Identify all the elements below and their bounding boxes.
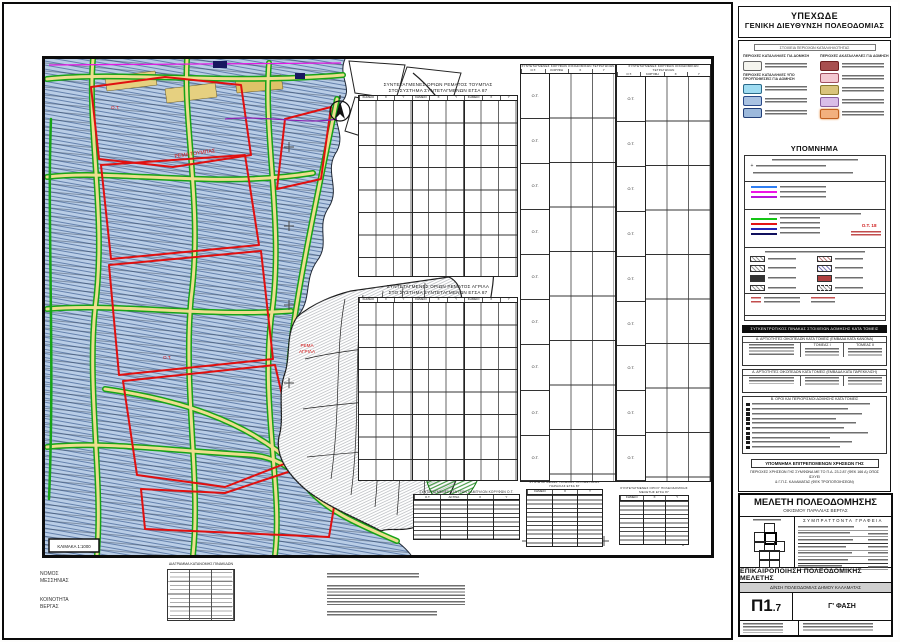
sheet-index-diagram — [740, 517, 795, 567]
row-text-bar — [752, 403, 870, 406]
label-bar — [768, 287, 796, 290]
decor — [750, 265, 813, 272]
red-label-bar — [851, 231, 881, 236]
diagram-grid — [167, 569, 235, 621]
column-header: Υ — [394, 298, 412, 302]
table-subtitle: ΣΤΟ ΣΥΣΤΗΜΑ ΣΥΝΤΕΤΑΓΜΕΝΩΝ ΕΓΣΑ 87 — [358, 290, 518, 296]
legend-section-ratios — [745, 294, 885, 316]
column-header: ΣΗΜΕΙΟ — [527, 490, 552, 494]
row-label-bars — [749, 377, 795, 384]
label-bar — [780, 222, 820, 225]
swatch-conditional-1 — [743, 84, 762, 94]
swatch-unsuitable-5 — [820, 109, 839, 119]
member-role-bar — [868, 533, 888, 535]
conditional-header: ΠΕΡΙΟΧΕΣ ΚΑΤΑΛΛΗΛΕΣ ΥΠΟ ΠΡΟΫΠΟΘΕΣΕΙΣ ΓΙΑ… — [743, 73, 815, 82]
revision-cell-right — [799, 621, 891, 635]
decor — [646, 77, 710, 481]
value-bars — [848, 377, 882, 385]
decor — [820, 85, 890, 95]
ot-group-label: Ο.Τ. — [617, 346, 645, 391]
table-title: ΣΥΝΤΕΤΑΓΜΕΝΕΣ ΚΕΝΤΡΩΝ ΚΑΜΠΥΛΩΝ ΚΟΡΥΦΩΝ Ο… — [413, 490, 520, 494]
community-label: ΚΟΙΝΟΤΗΤΑ ΒΕΡΓΑΣ — [40, 597, 69, 610]
column-header: Υ — [500, 298, 518, 302]
decor: ΤΟΜΕΑΣ Ι — [801, 343, 844, 357]
decor — [801, 376, 844, 386]
decor — [750, 256, 813, 263]
team-member-row — [798, 551, 888, 558]
section-header-bar — [769, 213, 861, 216]
swatch-label — [842, 99, 884, 105]
section-header-bar — [772, 159, 858, 162]
label-bar — [835, 287, 863, 290]
index-square — [769, 559, 780, 568]
suitable-column: ΠΕΡΙΟΧΕΣ ΚΑΤΑΛΛΗΛΕΣ ΓΙΑ ΔΟΜΗΣΗ ΠΕΡΙΟΧΕΣ … — [739, 54, 815, 142]
decor — [213, 61, 227, 68]
ot-group-label: Ο.Τ. — [617, 391, 645, 436]
ot-group-label: Ο.Τ. — [521, 391, 549, 436]
row-number-chip — [746, 403, 750, 406]
row-text-bar — [752, 432, 868, 435]
suitable-header: ΠΕΡΙΟΧΕΣ ΚΑΤΑΛΛΗΛΕΣ ΓΙΑ ΔΟΜΗΣΗ — [743, 54, 815, 58]
value-bars — [848, 348, 882, 356]
ot-sample-label: Ο.Τ. 18 — [862, 223, 877, 228]
column-header: Χ — [552, 490, 577, 494]
label-bar — [768, 267, 796, 270]
decor — [550, 74, 615, 481]
decor — [820, 109, 890, 119]
info-bars — [743, 623, 783, 633]
label-bar — [768, 277, 796, 280]
decor — [743, 375, 886, 386]
team-member-row — [798, 531, 888, 538]
row-number-chip — [746, 417, 750, 420]
value-bars — [805, 377, 839, 385]
swatch-unsuitable-4 — [820, 97, 839, 107]
swatch-label — [765, 86, 807, 92]
table-study-boundary: ΣΥΝΤΕΤΑΓΜΕΝΕΣ ΟΡΙΟΥ ΠΟΛΕΟΔΟΜΙΚΗΣ ΜΕΛΕΤΗΣ… — [619, 487, 689, 545]
zone-swatch — [817, 285, 832, 292]
column-header: Υ — [592, 69, 616, 73]
ot-group-label: Ο.Τ. — [617, 257, 645, 302]
note-paragraph — [327, 573, 419, 579]
row-number-chip — [746, 441, 750, 444]
ot-group-label: Ο.Τ. — [617, 122, 645, 167]
terms-list-row — [746, 445, 883, 450]
row-number-chip — [746, 427, 750, 430]
label-bar — [753, 172, 853, 175]
decor — [620, 501, 688, 544]
decor: ΣΗΜΕΙΟΧΥ — [619, 495, 689, 545]
cross-symbol: + — [751, 163, 754, 169]
column-header: Ο.Τ. — [414, 495, 440, 499]
row-number-chip — [746, 408, 750, 411]
column-header: ΣΗΜΕΙΟ — [620, 496, 643, 500]
community-line1: ΚΟΙΝΟΤΗΤΑ — [40, 597, 69, 604]
row-text-bar — [752, 413, 862, 416]
member-name-bar — [798, 546, 846, 549]
swatch-label — [842, 63, 884, 69]
row-text-bar — [752, 408, 848, 411]
table-body — [620, 501, 688, 544]
member-role-bar — [868, 539, 888, 541]
prefecture-label: ΝΟΜΟΣ ΜΕΣΣΗΝΙΑΣ — [40, 571, 69, 584]
team-rows — [795, 524, 891, 570]
legend-section-zones — [745, 248, 885, 294]
ot-group-label: Ο.Τ. — [521, 119, 549, 164]
label-bar — [756, 165, 826, 168]
row-number-chip — [746, 446, 750, 449]
row-number-chip — [746, 422, 750, 425]
decor — [170, 572, 232, 618]
sheet-distribution-diagram: ΔΙΑΓΡΑΜΜΑ ΚΑΤΑΝΟΜΗΣ ΠΙΝΑΚΙΔΩΝ — [145, 562, 257, 621]
label-bar — [780, 227, 820, 230]
plan-sheet: ΡΕΜΑ ΤΟΥΜΠΑΣ Ο.Τ. Ο.Τ. ΡΕΜΑ ΑΓΡΙΛΑ ΚΛΙΜΑ… — [0, 0, 900, 642]
title-block: ΜΕΛΕΤΗ ΠΟΛΕΟΔΟΜΗΣΗΣ ΟΙΚΙΣΜΟΥ ΠΑΡΑΛΙΑΣ ΒΕ… — [738, 493, 893, 637]
decor — [747, 254, 883, 293]
column-header: ΚΟΡΥΦΗ — [545, 69, 569, 73]
decor — [295, 73, 305, 79]
suitability-section: ΠΕΡΙΟΧΕΣ ΚΑΤΑΛΛΗΛΕΣ ΓΙΑ ΔΟΜΗΣΗ ΠΕΡΙΟΧΕΣ … — [739, 54, 890, 142]
table-title: Α. ΑΡΤΙΟΤΗΤΕΣ ΟΙΚΟΠΕΔΩΝ ΚΑΤΑ ΤΟΜΕΙΣ (ΕΜΒ… — [743, 370, 886, 375]
table-shoreline: ΣΥΝΤΕΤΑΓΜΕΝΕΣ ΓΡΑΜΜΗΣ ΟΡΙΟΘΕΤΗΣΗΣ ΠΑΡΑΛΙ… — [526, 481, 603, 547]
info-bars — [803, 623, 873, 631]
decor — [750, 275, 813, 282]
legend-panel: ΥΠΕΧΩΔΕ ΓΕΝΙΚΗ ΔΙΕΥΘΥΝΣΗ ΠΟΛΕΟΔΟΜΙΑΣ ΣΤΟ… — [731, 2, 898, 640]
summary-strip: ΣΥΓΚΕΝΤΡΩΤΙΚΟΣ ΠΙΝΑΚΑΣ ΣΤΟΙΧΕΙΩΝ ΔΟΜΗΣΗΣ… — [742, 325, 887, 333]
symbol-legend: + Ο.Τ. 18 — [744, 155, 886, 321]
label-bar — [835, 277, 863, 280]
scale-label: ΚΛΙΜΑΚΑ 1:1000 — [57, 544, 91, 549]
red-value-bar — [811, 297, 835, 300]
decor — [743, 343, 801, 357]
list-rows — [743, 402, 886, 450]
column-header: Υ — [577, 490, 602, 494]
footer-notes — [327, 573, 477, 617]
team-member-row — [798, 537, 888, 544]
decor — [359, 101, 517, 276]
table-body — [359, 303, 517, 480]
decor — [743, 108, 815, 118]
table-body — [527, 495, 602, 546]
label-bar — [780, 191, 826, 194]
swatch-unsuitable-2 — [820, 73, 839, 83]
column-header: ΑΚΤΙΝΑ — [440, 495, 466, 499]
decor — [751, 191, 879, 194]
team-header: ΣΥΜΠΡΑΤΤΟΝΤΑ ΓΡΑΦΕΙΑ — [795, 518, 891, 523]
row-text-bar — [752, 422, 856, 425]
member-name-bar — [798, 532, 850, 535]
decor — [552, 495, 553, 546]
sheet-number-cell: Π1.7 — [740, 593, 793, 620]
navy-line-symbol — [751, 228, 777, 230]
scale-box: ΚΛΙΜΑΚΑ 1:1000 — [49, 539, 99, 552]
label-bar — [780, 217, 820, 220]
decor: ↔Ι–Θ — [751, 319, 879, 321]
team-list: ΣΥΜΠΡΑΤΤΟΝΤΑ ΓΡΑΦΕΙΑ — [795, 517, 891, 567]
column-header: Χ — [377, 96, 395, 100]
decor — [643, 501, 644, 544]
decor — [751, 227, 879, 230]
ot-group-label: Ο.Τ. — [617, 167, 645, 212]
legend-section-survey: + — [745, 156, 885, 182]
settlement-subtitle: ΟΙΚΙΣΜΟΥ ΠΑΡΑΛΙΑΣ ΒΕΡΓΑΣ — [740, 508, 891, 513]
label-bar — [811, 301, 835, 304]
decor: ΤΟΜΕΑΣ ΙΙ — [844, 343, 886, 357]
hypomnema-title: ΥΠΟΜΝΗΜΑ — [739, 144, 890, 153]
ot-label-column: Ο.Τ.Ο.Τ.Ο.Τ.Ο.Τ.Ο.Τ.Ο.Τ.Ο.Τ.Ο.Τ.Ο.Τ. — [617, 77, 646, 481]
ot-group-label: Ο.Τ. — [617, 302, 645, 347]
member-role-bar — [868, 552, 888, 554]
table-ot-coordinates-1: ΣΥΝΤΕΤΑΓΜΕΝΕΣ ΚΟΡΥΦΩΝ ΟΙΚΟΔΟΜΙΚΩΝ ΤΕΤΡΑΓ… — [520, 64, 616, 482]
label-bar — [764, 297, 800, 300]
decor — [817, 275, 880, 282]
row-text-bar — [752, 437, 830, 440]
block-label-a: Ο.Τ. — [111, 105, 119, 110]
blue-line-symbol — [751, 186, 777, 188]
ot-group-label: Ο.Τ. — [521, 74, 549, 119]
column-header: Υ — [500, 96, 518, 100]
decor — [751, 222, 879, 225]
decor: ΤΟΜΕΑΣ Ι ΤΟΜΕΑΣ ΙΙ — [743, 342, 886, 357]
decor — [743, 376, 801, 386]
decor — [751, 297, 879, 300]
note-paragraph — [327, 611, 437, 617]
label-bar — [835, 258, 863, 261]
red-line-symbol — [751, 223, 777, 225]
diagram-caption-bar — [753, 519, 781, 522]
decor: ΣΗΜΕΙΟΧΥΣΗΜΕΙΟΧΥΣΗΜΕΙΟΧΥ — [358, 297, 518, 481]
community-line2: ΒΕΡΓΑΣ — [40, 604, 69, 611]
decor: ΣΗΜΕΙΟΧΥΣΗΜΕΙΟΧΥΣΗΜΕΙΟΧΥ — [358, 95, 518, 277]
decor — [412, 101, 413, 276]
zone-swatch — [750, 275, 765, 282]
decor — [751, 301, 879, 304]
swatch-label — [765, 110, 807, 116]
table-rema-toumpas: ΣΥΝΤΕΤΑΓΜΕΝΕΣ ΟΡΙΩΝ ΡΕΜΑΤΟΣ ΤΟΥΜΠΑΣ ΣΤΟ … — [358, 82, 518, 277]
decor — [817, 265, 880, 272]
study-title: ΜΕΛΕΤΗ ΠΟΛΕΟΔΟΜΗΣΗΣ — [740, 497, 891, 508]
column-header: Υ — [447, 96, 465, 100]
label-bar — [764, 301, 800, 304]
agency-header: ΥΠΕΧΩΔΕ ΓΕΝΙΚΗ ΔΙΕΥΘΥΝΣΗ ΠΟΛΕΟΔΟΜΙΑΣ — [738, 6, 891, 38]
decor — [440, 500, 441, 539]
land-uses-line1: ΠΕΡΙΟΧΕΣ ΧΡΗΣΕΩΝ ΓΗΣ ΣΥΜΦΩΝΑ ΜΕ ΤΟ Π.Δ. … — [739, 470, 890, 479]
table-subtitle: ΣΤΟ ΣΥΣΤΗΜΑ ΣΥΝΤΕΤΑΓΜΕΝΩΝ ΕΓΣΑ 87 — [358, 88, 518, 94]
ot-group-label: Ο.Τ. — [521, 345, 549, 390]
column-header: Χ — [377, 298, 395, 302]
agency-directorate: ΓΕΝΙΚΗ ΔΙΕΥΘΥΝΣΗ ΠΟΛΕΟΔΟΜΙΑΣ — [739, 21, 890, 30]
sheet-number-row: Π1.7 Γ' ΦΑΣΗ — [740, 593, 891, 621]
legend-section-boundaries — [745, 182, 885, 210]
green-line-symbol — [751, 218, 777, 220]
team-member-row — [798, 544, 888, 551]
column-header: Υ — [447, 298, 465, 302]
unsuitable-column: ΠΕΡΙΟΧΕΣ ΑΚΑΤΑΛΛΗΛΕΣ ΓΙΑ ΔΟΜΗΣΗ — [815, 54, 890, 142]
phase-label: Γ' ΦΑΣΗ — [793, 593, 891, 620]
authority-strip: Δ/ΝΣΗ ΠΟΛΕΟΔΟΜΙΑΣ ΔΗΜΟΥ ΚΑΛΑΜΑΤΑΣ — [740, 583, 891, 593]
label-bar — [768, 258, 796, 261]
decor — [844, 376, 886, 386]
table-body — [414, 500, 519, 539]
column-header: Υ — [493, 495, 519, 499]
member-role-bar — [868, 526, 888, 528]
member-role-bar — [868, 546, 888, 548]
revision-cell-left — [740, 621, 799, 635]
team-member-row — [798, 557, 888, 564]
table-ot-coordinates-2: ΣΥΝΤΕΤΑΓΜΕΝΕΣ ΚΟΡΥΦΩΝ ΟΙΚΟΔΟΜΙΚΩΝ ΤΕΤΡΑΓ… — [616, 64, 711, 482]
ot-group-label: Ο.Τ. — [617, 77, 645, 122]
swatch-suitable — [743, 61, 762, 71]
decor — [577, 495, 578, 546]
column-header: ΣΗΜΕΙΟ — [412, 298, 430, 302]
column-header: Χ — [482, 298, 500, 302]
row-text-bar — [752, 418, 836, 421]
zone-swatch — [750, 265, 765, 272]
column-header: Υ — [665, 496, 688, 500]
legend-section-plan-lines: Ο.Τ. 18 — [745, 210, 885, 248]
ot-group-label: Ο.Τ. — [521, 255, 549, 300]
label-bar — [758, 320, 816, 321]
decor — [743, 96, 815, 106]
ot-group-label: Ο.Τ. — [521, 164, 549, 209]
unsuitable-header: ΠΕΡΙΟΧΕΣ ΑΚΑΤΑΛΛΗΛΕΣ ΓΙΑ ΔΟΜΗΣΗ — [820, 54, 890, 58]
agency-name: ΥΠΕΧΩΔΕ — [739, 11, 890, 21]
decor — [527, 495, 602, 546]
section-header-bar — [765, 251, 865, 254]
decor — [751, 217, 879, 220]
swatch-label — [842, 75, 884, 81]
member-name-bar — [798, 559, 848, 562]
row-label-bars — [749, 344, 795, 356]
legend-data-title: ΣΤΟΙΧΕΙΑ ΠΕΡΙΟΧΩΝ ΚΑΤΑΛΛΗΛΟΤΗΤΑΣ — [754, 44, 876, 51]
member-role-bar — [868, 559, 888, 561]
decor — [412, 303, 413, 480]
stream-label-south-2: ΑΓΡΙΛΑ — [299, 349, 316, 354]
legend-section-arrows: ↔Ι–Θ — [745, 316, 885, 321]
zone-swatch — [750, 256, 765, 263]
prefecture-line2: ΜΕΣΣΗΝΙΑΣ — [40, 578, 69, 585]
decor — [646, 77, 710, 481]
table-body: Ο.Τ.Ο.Τ.Ο.Τ.Ο.Τ.Ο.Τ.Ο.Τ.Ο.Τ.Ο.Τ.Ο.Τ. — [617, 77, 710, 481]
decor — [817, 285, 880, 292]
building-terms-list: Β. ΟΡΟΙ ΚΑΙ ΠΕΡΙΟΡΙΣΜΟΙ ΔΟΜΗΣΗΣ ΚΑΤΑ ΤΟΜ… — [742, 396, 887, 454]
decor — [751, 196, 879, 199]
red-value-bar — [751, 297, 761, 300]
ot-group-label: Ο.Τ. — [521, 210, 549, 255]
row-text-bar — [752, 446, 840, 449]
member-name-bar — [798, 552, 852, 555]
label-bar — [780, 196, 826, 199]
decor — [750, 285, 813, 292]
ot-group-label: Ο.Τ. — [521, 300, 549, 345]
decor — [665, 501, 666, 544]
column-header: Χ — [482, 96, 500, 100]
land-uses-line2: & Γ.Π.Σ. ΚΑΛΑΜΑΤΑΣ (ΦΕΚ ΤΡΟΠΟΠΟΙΗΣΕΩΝ) — [739, 480, 890, 485]
member-name-bar — [798, 539, 853, 542]
darkblue-line-symbol — [751, 233, 777, 235]
sheet-number-suffix: .7 — [773, 603, 781, 614]
magenta-line-symbol — [751, 191, 777, 193]
decor — [820, 61, 890, 71]
update-title-strip: ΕΠΙΚΑΙΡΟΠΟΙΗΣΗ ΠΟΛΕΟΔΟΜΙΚΗΣ ΜΕΛΕΤΗΣ — [740, 568, 891, 583]
swatch-conditional-3 — [743, 108, 762, 118]
column-header: Χ — [643, 496, 666, 500]
zone-swatch — [817, 256, 832, 263]
stream-label-south-1: ΡΕΜΑ — [300, 343, 314, 348]
legend-box: ΣΤΟΙΧΕΙΑ ΠΕΡΙΟΧΩΝ ΚΑΤΑΛΛΗΛΟΤΗΤΑΣ ΠΕΡΙΟΧΕ… — [738, 40, 891, 492]
column-header: ΣΗΜΕΙΟ — [359, 96, 377, 100]
sheet-number: Π1 — [751, 596, 773, 616]
column-header: Υ — [687, 72, 710, 76]
decor — [550, 74, 615, 481]
column-header: Ο.Τ. — [617, 72, 640, 76]
decor — [493, 500, 494, 539]
row-text-bar — [752, 441, 852, 444]
ot-label-column: Ο.Τ.Ο.Τ.Ο.Τ.Ο.Τ.Ο.Τ.Ο.Τ.Ο.Τ.Ο.Τ.Ο.Τ. — [521, 74, 550, 481]
swatch-conditional-2 — [743, 96, 762, 106]
swatch-label — [765, 98, 807, 104]
zone-swatch — [817, 275, 832, 282]
table-body: Ο.Τ.Ο.Τ.Ο.Τ.Ο.Τ.Ο.Τ.Ο.Τ.Ο.Τ.Ο.Τ.Ο.Τ. — [521, 74, 615, 481]
column-header: Χ — [429, 298, 447, 302]
column-header: ΣΗΜΕΙΟ — [359, 298, 377, 302]
decor — [820, 97, 890, 107]
zone-swatch — [817, 265, 832, 272]
member-name-bar — [798, 526, 854, 529]
row-number-chip — [746, 436, 750, 439]
column-header: Χ — [467, 495, 493, 499]
row-number-chip — [746, 412, 750, 415]
value-bars — [805, 348, 839, 356]
column-header: ΣΗΜΕΙΟ — [412, 96, 430, 100]
ot-group-label: Ο.Τ. — [617, 212, 645, 257]
swatch-unsuitable-1 — [820, 61, 839, 71]
row-number-chip — [746, 432, 750, 435]
ot-group-label: Ο.Τ. — [617, 436, 645, 481]
zone-swatch — [750, 285, 765, 292]
table-title: Α. ΑΡΤΙΟΤΗΤΕΣ ΟΙΚΟΠΕΔΩΝ ΚΑΤΑ ΤΟΜΕΙΣ (ΕΜΒ… — [743, 337, 886, 342]
column-header: ΚΟΡΥΦΗ — [640, 72, 663, 76]
table-title: ΣΥΝΤΕΤΑΓΜΕΝΕΣ ΚΟΡΥΦΩΝ ΟΙΚΟΔΟΜΙΚΩΝ ΤΕΤΡΑΓ… — [617, 65, 710, 72]
column-header: Υ — [394, 96, 412, 100]
decor — [467, 500, 468, 539]
red-value-bar — [751, 301, 761, 304]
column-header: Χ — [664, 72, 687, 76]
column-header: Ο.Τ. — [521, 69, 545, 73]
land-uses-title: ΥΠΟΜΝΗΜΑ ΕΠΙΤΡΕΠΟΜΕΝΩΝ ΧΡΗΣΕΩΝ ΓΗΣ — [751, 459, 879, 468]
decor — [751, 186, 879, 189]
diagram-title: ΔΙΑΓΡΑΜΜΑ ΚΑΤΑΝΟΜΗΣ ΠΙΝΑΚΙΔΩΝ — [145, 562, 257, 567]
decor — [359, 303, 517, 480]
label-bar — [780, 232, 820, 235]
decor — [817, 256, 880, 263]
decor: + — [751, 163, 879, 169]
swatch-unsuitable-3 — [820, 85, 839, 95]
swatch-label — [765, 63, 807, 69]
sector-table-a: Α. ΑΡΤΙΟΤΗΤΕΣ ΟΙΚΟΠΕΔΩΝ ΚΑΤΑ ΤΟΜΕΙΣ (ΕΜΒ… — [742, 336, 887, 366]
label-bar — [780, 186, 826, 189]
decor — [464, 303, 465, 480]
team-member-row — [798, 524, 888, 531]
decor — [464, 101, 465, 276]
row-text-bar — [752, 427, 844, 430]
team-row: ΣΥΜΠΡΑΤΤΟΝΤΑ ΓΡΑΦΕΙΑ — [740, 517, 891, 568]
label-bar — [835, 267, 863, 270]
decor — [743, 61, 815, 71]
decor — [743, 84, 815, 94]
table-body — [359, 101, 517, 276]
violet-line-symbol — [751, 196, 777, 198]
